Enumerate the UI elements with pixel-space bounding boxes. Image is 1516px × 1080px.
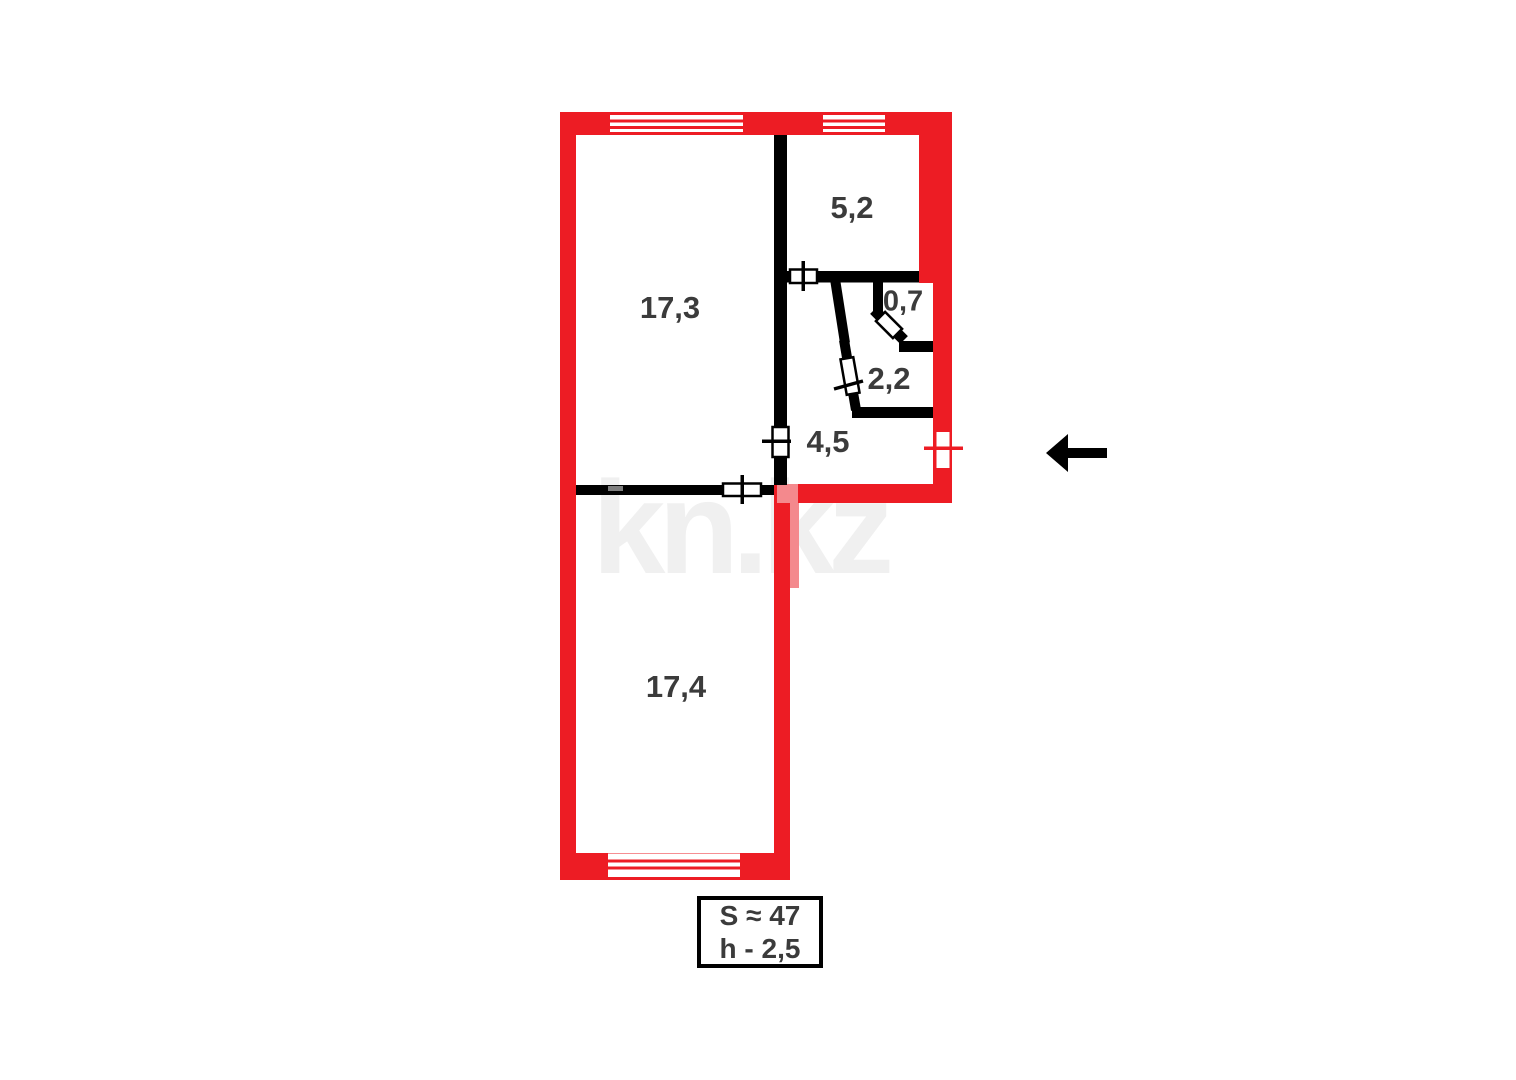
window-bottom-glass bbox=[608, 854, 740, 878]
door-bath-leaf bbox=[840, 357, 859, 395]
wall-exterior-right-middle bbox=[933, 283, 952, 418]
window-top-right-mullion-1 bbox=[823, 120, 885, 123]
wall-exterior-right-upper bbox=[919, 112, 952, 283]
room-label-0-7: 0,7 bbox=[883, 286, 923, 319]
window-top-right-mullion-2 bbox=[823, 126, 885, 129]
door-leaf-marker-side bbox=[790, 503, 799, 588]
room-label-5-2: 5,2 bbox=[830, 190, 873, 226]
entrance-arrow-icon bbox=[1046, 434, 1107, 472]
room-label-2-2: 2,2 bbox=[867, 361, 910, 397]
door-kitchen-tick bbox=[802, 261, 806, 291]
window-bottom bbox=[608, 854, 740, 878]
entrance-door-tick bbox=[924, 447, 963, 451]
window-top-left-mullion-3 bbox=[610, 132, 743, 135]
info-box: S ≈ 47 h - 2,5 bbox=[697, 896, 823, 968]
wall-exterior-room2-right bbox=[774, 503, 790, 880]
window-top-right bbox=[823, 115, 885, 135]
window-top-left-mullion-2 bbox=[610, 126, 743, 129]
room-label-17-4: 17,4 bbox=[646, 669, 706, 705]
door-bath bbox=[840, 357, 859, 395]
wall-bath-bottom bbox=[852, 407, 933, 418]
wall-wc-bottom bbox=[899, 341, 933, 352]
door-room1-hall-tick bbox=[762, 440, 791, 444]
window-bottom-mullion-1 bbox=[608, 860, 740, 863]
window-top-left bbox=[610, 115, 743, 135]
total-area-label: S ≈ 47 bbox=[720, 899, 801, 932]
ceiling-height-label: h - 2,5 bbox=[720, 932, 801, 965]
door-leaf-marker-top bbox=[777, 484, 798, 503]
door-room1-room2-tick bbox=[741, 475, 745, 504]
room-label-17-3: 17,3 bbox=[640, 290, 700, 326]
window-top-left-mullion-1 bbox=[610, 120, 743, 123]
window-top-right-mullion-3 bbox=[823, 132, 885, 135]
floorplan-page: kn.kz bbox=[0, 0, 1516, 1080]
window-bottom-mullion-2 bbox=[608, 867, 740, 870]
wall-exterior-hall-bottom bbox=[774, 484, 952, 503]
wall-vent-block bbox=[608, 486, 623, 491]
wall-exterior-left bbox=[560, 112, 576, 880]
room-label-4-5: 4,5 bbox=[806, 424, 849, 460]
wall-bath-left-upper bbox=[835, 279, 845, 343]
